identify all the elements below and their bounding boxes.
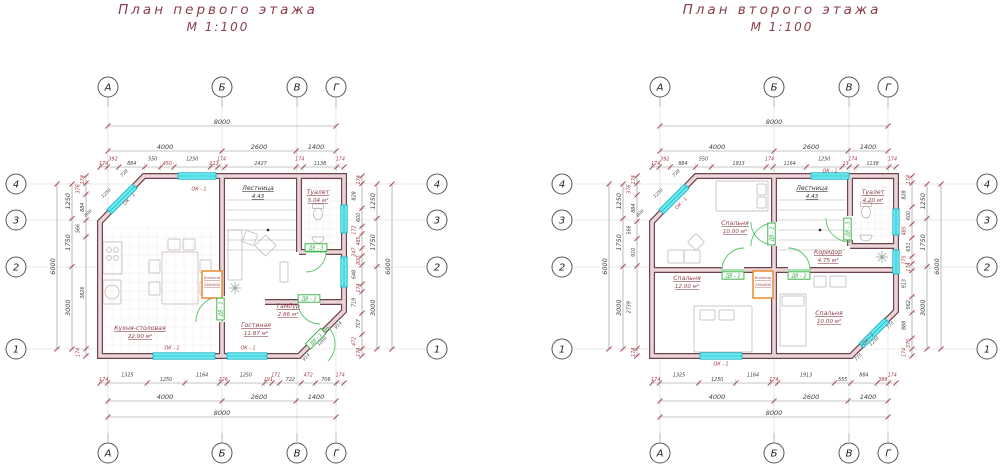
svg-text:884: 884 [127,161,136,167]
svg-text:174: 174 [356,283,362,292]
svg-text:247: 247 [351,247,357,256]
svg-text:1913: 1913 [733,161,745,167]
svg-text:888: 888 [901,321,907,330]
svg-text:722: 722 [286,377,295,383]
svg-text:1250: 1250 [369,193,377,210]
svg-text:172: 172 [351,225,357,234]
svg-text:1750: 1750 [369,234,377,251]
svg-text:884: 884 [859,372,868,378]
svg-text:171: 171 [271,372,280,378]
room-name: Гостиная [241,322,271,329]
svg-text:4: 4 [434,180,440,191]
svg-text:485: 485 [356,236,362,245]
svg-text:226: 226 [219,377,228,383]
svg-text:4: 4 [559,180,565,191]
svg-text:3000: 3000 [64,299,72,316]
svg-text:ДВ - 2: ДВ - 2 [791,274,807,280]
svg-text:828: 828 [351,191,357,200]
svg-text:174: 174 [336,372,345,378]
svg-text:Б: Б [219,449,226,460]
svg-text:1250: 1250 [711,377,723,383]
svg-text:1250: 1250 [240,372,252,378]
svg-text:2: 2 [434,263,440,274]
svg-text:ДВ - 2: ДВ - 2 [725,274,741,280]
svg-text:В: В [846,83,853,94]
svg-text:174: 174 [80,175,86,184]
room-area: 22.00 м² [128,333,153,340]
svg-text:566: 566 [75,224,81,233]
svg-text:1325: 1325 [673,372,685,378]
svg-text:4: 4 [984,180,990,191]
svg-text:1750: 1750 [615,234,623,251]
svg-text:ДВ - 2: ДВ - 2 [219,302,225,318]
room-name: Спальня [815,310,843,317]
svg-text:1325: 1325 [121,372,133,378]
svg-text:ОК - 1: ОК - 1 [713,362,728,368]
svg-text:2600: 2600 [803,143,820,151]
svg-text:174: 174 [356,348,362,357]
svg-text:1164: 1164 [196,372,208,378]
svg-text:376: 376 [75,184,81,193]
svg-text:1400: 1400 [860,143,877,151]
svg-text:1250: 1250 [652,187,664,199]
svg-text:6000: 6000 [49,258,57,275]
svg-text:Колонна: Колонна [755,276,771,280]
svg-text:174: 174 [631,175,637,184]
svg-text:3: 3 [559,216,565,227]
svg-text:ОК - 1: ОК - 1 [164,346,179,352]
svg-text:174: 174 [848,156,857,162]
svg-text:4: 4 [13,180,19,191]
svg-text:174: 174 [906,175,912,184]
room-area: 10.00 м² [817,318,842,325]
room-name: Тамбур [276,302,300,310]
room-area: 2.66 м² [278,311,299,318]
svg-text:2600: 2600 [251,393,268,401]
room-area: 12.00 м² [675,283,700,290]
svg-text:174: 174 [295,156,304,162]
svg-text:1: 1 [434,345,440,356]
svg-text:728: 728 [671,168,681,178]
svg-text:174: 174 [888,156,897,162]
svg-text:1913: 1913 [800,372,812,378]
svg-text:3: 3 [984,216,990,227]
svg-text:1138: 1138 [866,161,878,167]
svg-text:562: 562 [906,300,912,309]
svg-text:В: В [294,449,301,460]
svg-text:8000: 8000 [766,118,783,126]
svg-text:174: 174 [651,161,660,167]
svg-text:2600: 2600 [251,143,268,151]
room-name: Коридор [814,249,842,256]
svg-text:Колонна: Колонна [204,276,220,280]
svg-text:В: В [294,83,301,94]
svg-text:А: А [656,449,664,460]
column-marker: Колонна250х500 [753,271,773,298]
svg-text:2: 2 [559,263,565,274]
svg-text:ОК - 1: ОК - 1 [191,187,206,193]
svg-text:388: 388 [878,377,887,383]
svg-text:ОК - 1: ОК - 1 [822,169,837,175]
svg-text:174: 174 [901,348,907,357]
svg-text:174: 174 [906,262,912,271]
svg-text:376: 376 [626,185,632,194]
svg-text:2600: 2600 [803,393,820,401]
svg-text:250х500: 250х500 [204,283,221,287]
svg-text:600: 600 [356,213,362,222]
svg-text:Б: Б [771,83,778,94]
svg-text:392: 392 [660,156,669,162]
svg-text:550: 550 [148,156,157,162]
svg-text:3: 3 [434,216,440,227]
svg-text:2: 2 [13,263,19,274]
svg-text:174: 174 [765,156,774,162]
room-name: Кухня-столовая [114,325,166,332]
svg-text:174: 174 [356,175,362,184]
svg-text:174: 174 [217,156,226,162]
svg-text:3: 3 [13,216,19,227]
svg-text:8000: 8000 [766,409,783,417]
svg-text:А: А [104,83,112,94]
svg-text:174: 174 [631,348,637,357]
svg-text:2: 2 [984,263,990,274]
svg-text:ОК - 1: ОК - 1 [240,346,255,352]
room-name: Туалет [307,189,330,196]
svg-text:376: 376 [906,339,912,348]
svg-text:1400: 1400 [860,393,877,401]
svg-text:2427: 2427 [254,161,266,167]
svg-text:1250: 1250 [919,193,927,210]
svg-text:6000: 6000 [601,258,609,275]
svg-text:728: 728 [119,168,129,178]
svg-text:ДВ - 3: ДВ - 3 [308,246,324,252]
svg-text:1250: 1250 [100,187,112,199]
svg-text:1: 1 [559,345,565,356]
room-area: 3.04 м² [308,197,329,204]
svg-text:ДВ - 3: ДВ - 3 [846,222,852,238]
svg-text:1250: 1250 [818,156,830,162]
svg-text:472: 472 [351,337,357,346]
svg-text:300: 300 [356,256,362,265]
room-area: 4.43 [806,194,819,200]
svg-text:1400: 1400 [308,143,325,151]
room-name: Лестница [241,185,274,192]
svg-text:ДВ - 2: ДВ - 2 [770,227,776,243]
svg-text:719: 719 [351,298,357,307]
svg-text:884: 884 [631,204,637,213]
svg-text:174: 174 [75,348,81,357]
column-marker: Колонна250х500 [202,271,222,298]
svg-text:1: 1 [13,345,19,356]
svg-text:1250: 1250 [64,193,72,210]
svg-text:3000: 3000 [615,299,623,316]
svg-text:450: 450 [163,161,172,167]
svg-text:707: 707 [356,319,362,328]
svg-text:6000: 6000 [933,258,941,275]
svg-text:А: А [656,83,664,94]
floor-plans-svg: 8000400026001400174392884550450125021317… [0,0,1000,466]
svg-text:884: 884 [678,161,687,167]
svg-text:174: 174 [651,377,660,383]
svg-text:В: В [846,449,853,460]
svg-text:651: 651 [906,242,912,251]
svg-text:8000: 8000 [214,409,231,417]
svg-text:1250: 1250 [160,377,172,383]
svg-text:250х500: 250х500 [755,283,772,287]
svg-text:174: 174 [769,377,778,383]
svg-text:ДВ - 2: ДВ - 2 [301,297,317,303]
svg-text:6000: 6000 [384,258,392,275]
svg-text:1750: 1750 [64,234,72,251]
svg-text:174: 174 [99,377,108,383]
svg-text:648: 648 [351,270,357,279]
svg-text:4000: 4000 [157,143,174,151]
room-name: Туалет [862,189,885,196]
room-area: 4.20 м² [863,197,884,204]
svg-text:Б: Б [219,83,226,94]
svg-text:472: 472 [304,372,313,378]
svg-text:1400: 1400 [308,393,325,401]
room-area: 11.87 м² [244,330,269,337]
room-area: 4.43 [252,194,265,200]
svg-text:1250: 1250 [615,193,623,210]
svg-text:550: 550 [699,156,708,162]
svg-text:174: 174 [336,156,345,162]
svg-text:392: 392 [108,156,117,162]
svg-text:913: 913 [901,279,907,288]
svg-text:Б: Б [771,449,778,460]
room-name: Спальня [673,275,701,282]
svg-text:910: 910 [631,248,637,257]
svg-text:1164: 1164 [747,372,759,378]
room-name: Лестница [795,185,828,192]
room-area: 4.75 м² [818,257,839,264]
svg-text:1750: 1750 [919,234,927,251]
svg-text:1164: 1164 [784,161,796,167]
svg-text:174: 174 [99,161,108,167]
svg-text:485: 485 [901,226,907,235]
svg-text:884: 884 [80,203,86,212]
svg-text:1250: 1250 [186,156,198,162]
svg-text:3000: 3000 [369,299,377,316]
svg-text:А: А [104,449,112,460]
svg-text:8000: 8000 [214,118,231,126]
drawing-sheet: План первого этажа М 1:100 План второго … [0,0,1000,466]
room-name: Спальня [721,220,749,227]
svg-text:4000: 4000 [709,143,726,151]
svg-text:600: 600 [906,211,912,220]
svg-text:566: 566 [626,225,632,234]
svg-text:1: 1 [984,345,990,356]
svg-text:1138: 1138 [314,161,326,167]
svg-text:555: 555 [838,377,847,383]
svg-text:3000: 3000 [919,299,927,316]
svg-text:4000: 4000 [709,393,726,401]
svg-text:828: 828 [901,190,907,199]
room-area: 10.00 м² [723,228,748,235]
svg-text:3826: 3826 [80,287,86,299]
svg-text:706: 706 [321,377,330,383]
svg-text:174: 174 [888,372,897,378]
svg-text:4000: 4000 [157,393,174,401]
svg-text:2739: 2739 [626,301,632,313]
